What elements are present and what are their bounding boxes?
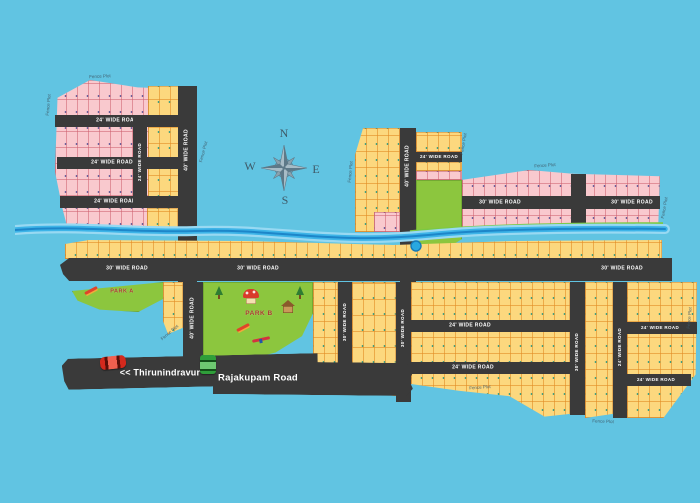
road-label: 30' WIDE ROAD bbox=[237, 267, 279, 272]
road-label: 40' WIDE ROAD bbox=[185, 129, 190, 171]
road-label: 30' WIDE ROAD bbox=[401, 309, 406, 347]
stream bbox=[15, 214, 670, 258]
fence-plot-label: Fence Plot bbox=[199, 141, 209, 163]
fence-plot-label: Fence Plot bbox=[592, 419, 614, 424]
park-b-label: PARK B bbox=[245, 311, 272, 318]
compass-south-label: S bbox=[282, 194, 289, 206]
nw-yellow-plots-top bbox=[148, 86, 180, 116]
compass-north-label: N bbox=[280, 127, 289, 139]
main-road-horizontal bbox=[60, 258, 672, 281]
fence-plot-label: Fence Plot bbox=[46, 94, 52, 116]
road-label: 40' WIDE ROAD bbox=[191, 297, 196, 339]
road-label: 24' WIDE ROAD bbox=[452, 366, 494, 371]
road-label: 24' WIDE ROAD bbox=[96, 119, 138, 124]
fence-plot-label: Fence Plot bbox=[460, 133, 468, 155]
road-label: 24' WIDE ROAD bbox=[449, 324, 491, 329]
road-label: 24' WIDE ROAD bbox=[618, 328, 623, 366]
road-label: 30' WIDE ROAD bbox=[575, 333, 580, 371]
road-label: 30' WIDE ROAD bbox=[611, 201, 653, 206]
se-plot-block bbox=[627, 282, 697, 418]
road-label: 24' WIDE ROAD bbox=[420, 155, 458, 160]
pond-icon bbox=[411, 241, 421, 251]
road-label: 40' WIDE ROAD bbox=[406, 145, 411, 187]
rajakupam-road-sign: Rajakupam Road bbox=[218, 373, 298, 383]
park-a-label: PARK A bbox=[110, 289, 133, 295]
road-label: 24' WIDE ROAD bbox=[637, 378, 675, 383]
fence-plot-label: Fence Plot bbox=[534, 163, 556, 169]
road-label: 30' WIDE ROAD bbox=[479, 201, 521, 206]
road-label: 30' WIDE ROAD bbox=[601, 267, 643, 272]
road-label: 24' WIDE ROAD bbox=[91, 161, 133, 166]
road-label: 24' WIDE ROAD bbox=[94, 200, 136, 205]
tree-icon bbox=[214, 286, 224, 299]
road-label: 24' WIDE ROAD bbox=[641, 326, 679, 331]
road-label: 24' WIDE ROAD bbox=[138, 143, 143, 181]
hut-icon bbox=[281, 300, 295, 313]
plot-layout-map: 24' WIDE ROAD 24' WIDE ROAD 24' WIDE ROA… bbox=[0, 0, 700, 503]
mid-right-yellow-plots-bottom bbox=[416, 162, 462, 171]
road-label: 30' WIDE ROAD bbox=[106, 267, 148, 272]
mid-right-yellow-plots-top bbox=[416, 132, 462, 152]
thirunindravur-sign: << Thirunindravur bbox=[120, 369, 200, 378]
fence-plot-label: Fence Plot bbox=[160, 324, 179, 341]
road-label: 30' WIDE ROAD bbox=[343, 303, 348, 341]
compass-east-label: E bbox=[312, 163, 319, 175]
compass-west-label: W bbox=[244, 160, 255, 172]
south-center-block bbox=[411, 282, 570, 418]
fence-plot-label: Fence Plot bbox=[348, 161, 354, 183]
mid-right-pink-plots bbox=[416, 171, 462, 180]
red-car-icon bbox=[99, 355, 126, 371]
playhouse-icon bbox=[243, 289, 259, 304]
south-narrow-column bbox=[585, 282, 613, 418]
tree-icon bbox=[295, 286, 305, 299]
compass-rose-icon bbox=[252, 136, 316, 200]
park-a-area bbox=[72, 282, 164, 312]
fence-plot-label: Fence Plot bbox=[89, 74, 111, 80]
green-truck-icon bbox=[200, 355, 216, 374]
